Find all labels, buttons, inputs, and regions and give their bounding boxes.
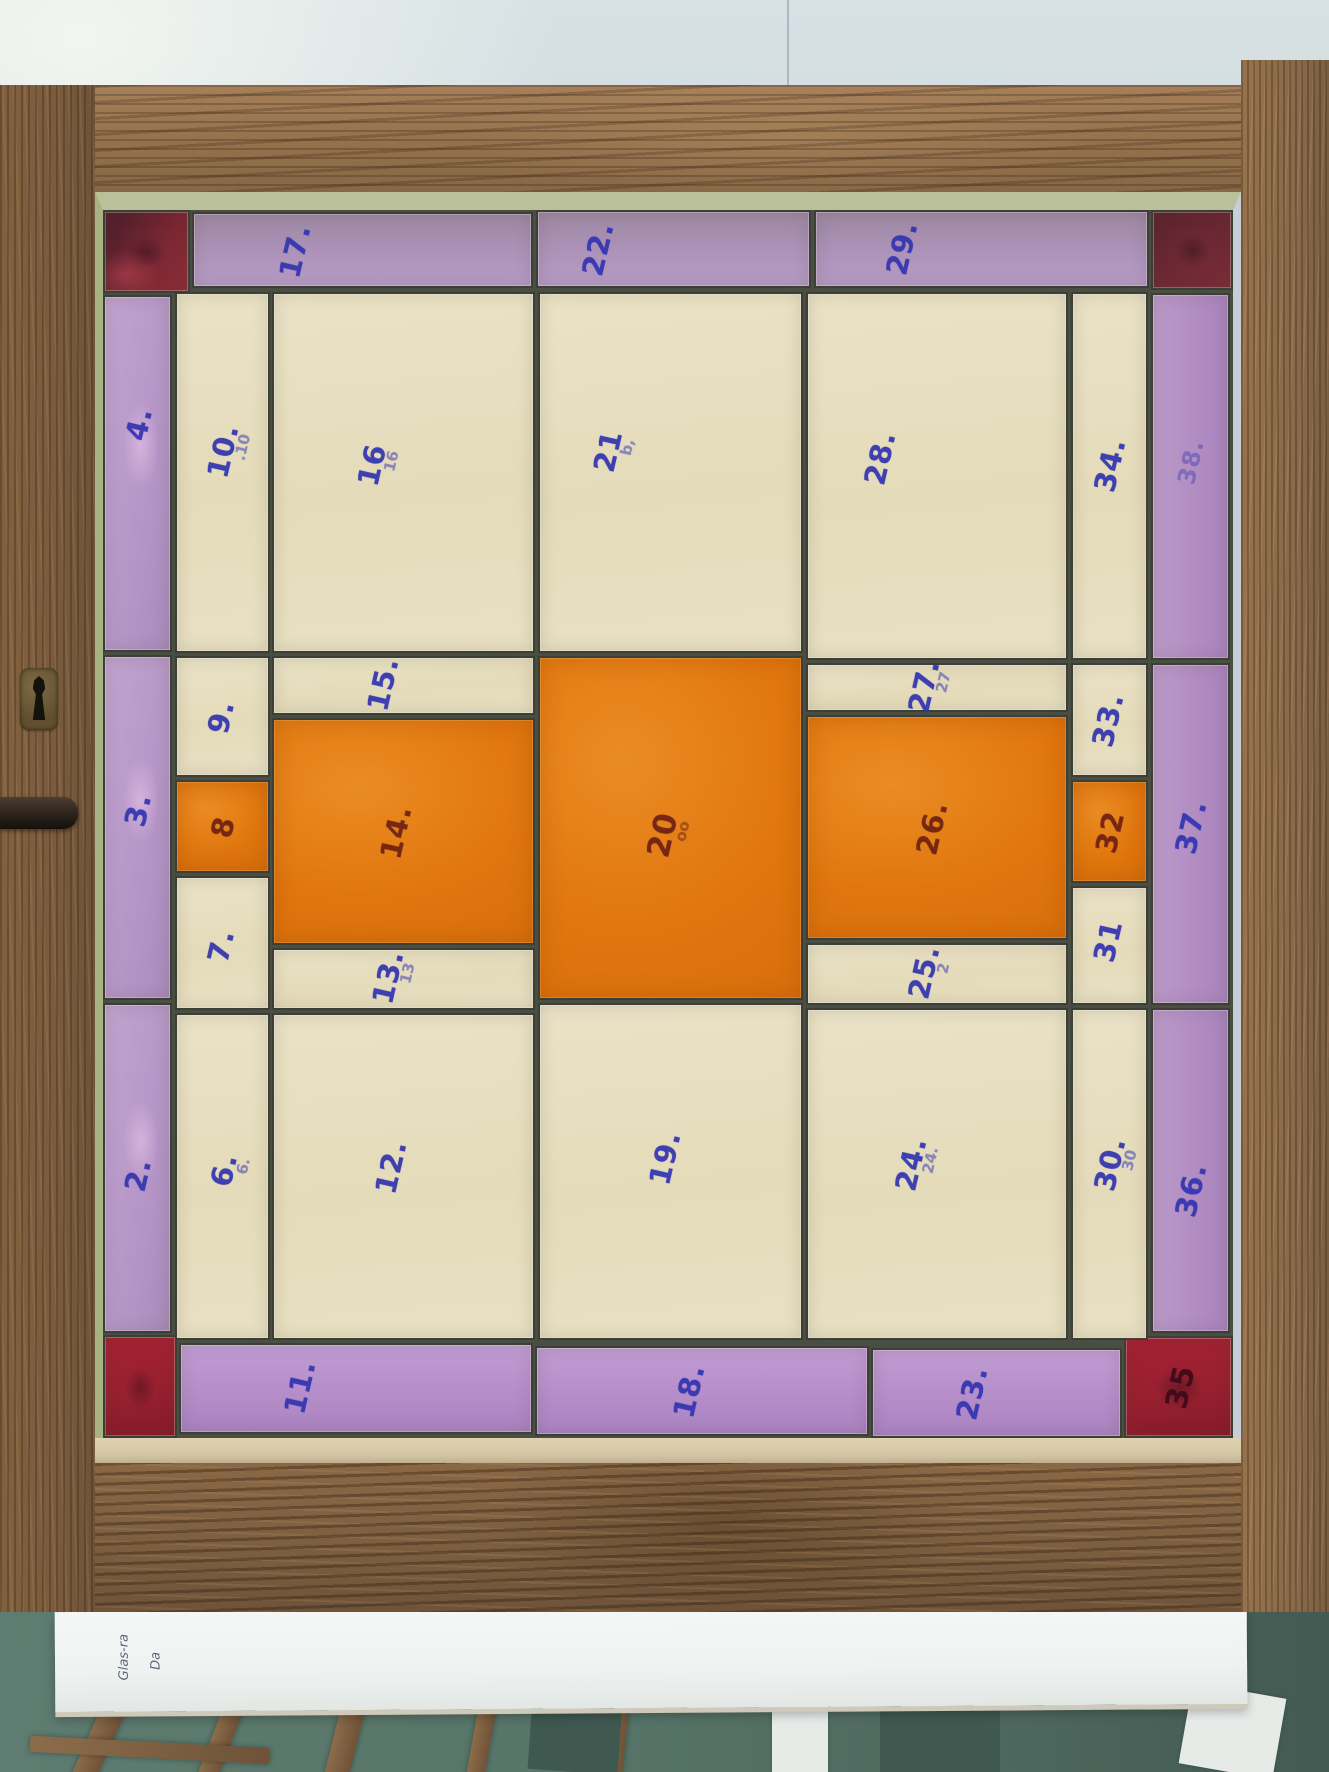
glass-pane-24: 24.24. (806, 1008, 1068, 1340)
glass-pane-9: 9. (175, 656, 270, 777)
glass-pane-36: 36. (1151, 1008, 1230, 1333)
pane-number: 3. (117, 790, 158, 830)
glass-pane-35: 35 (1124, 1336, 1233, 1438)
pane-number: 17. (272, 221, 317, 282)
glass-pane-15: 15. (272, 656, 535, 715)
pane-number: 34. (1087, 435, 1132, 496)
note-text: Glas-ra (117, 1634, 132, 1681)
pane-number: 31 (1087, 916, 1130, 965)
glass-pane-corner-tl (103, 210, 190, 293)
glass-pane-2: 2. (103, 1003, 172, 1333)
glass-pane-38: 38. (1151, 293, 1230, 660)
pane-number: 14. (373, 801, 418, 862)
pane-number: 4. (118, 404, 159, 444)
glass-pane-22: 22. (536, 210, 811, 288)
pane-number: 23. (949, 1363, 994, 1424)
glass-pane-18: 18. (535, 1346, 869, 1436)
pane-number: 12. (368, 1136, 413, 1197)
glass-pane-14: 14. (272, 718, 535, 945)
glass-pane-17: 17. (192, 212, 533, 288)
glass-pane-34: 34. (1071, 292, 1148, 660)
pane-number: 9. (200, 696, 241, 736)
keyhole-icon (20, 668, 58, 730)
glass-pane-corner-tr (1151, 210, 1233, 290)
glass-pane-19: 19. (538, 1003, 803, 1340)
glass-pane-26: 26. (806, 715, 1068, 940)
pane-number: 19. (643, 1128, 688, 1189)
pane-number-ghost: oo (671, 819, 693, 843)
pane-number-ghost: 16 (381, 449, 403, 473)
pane-number-ghost: 30 (1118, 1148, 1140, 1172)
glass-pane-37: 37. (1151, 663, 1230, 1005)
glass-pane-3: 3. (103, 655, 172, 1000)
frame-left-stile (0, 85, 95, 1612)
pane-number: 22. (575, 219, 620, 280)
pane-number: 8 (204, 812, 242, 840)
keyhole-slot (28, 676, 50, 720)
frame-right-stile (1241, 60, 1329, 1612)
pane-number: 33. (1085, 690, 1130, 751)
pane-number: 29. (879, 217, 924, 278)
pane-number: 7. (200, 926, 241, 966)
pane-number: 18. (666, 1361, 711, 1422)
photo-scene: Glas-ra Da 17.22.29.4.3.2.11.18.23.3538.… (0, 0, 1329, 1772)
pane-number: 35 (1159, 1362, 1203, 1413)
glass-pane-32: 32 (1071, 780, 1148, 883)
pane-number: 2. (117, 1155, 158, 1195)
glass-pane-16: 1616 (272, 292, 535, 653)
glass-pane-33: 33. (1071, 663, 1148, 777)
glass-pane-4: 4. (103, 295, 172, 652)
pane-number: 32 (1088, 807, 1131, 856)
glass-pane-11: 11. (179, 1343, 533, 1434)
wall-seam-line (787, 0, 789, 92)
glass-pane-29: 29. (814, 210, 1149, 288)
pane-number: 15. (360, 654, 405, 715)
easel-post (772, 1702, 828, 1772)
glass-pane-20: 20oo (538, 656, 803, 1000)
note-text: Da (148, 1652, 163, 1670)
glass-pane-corner-bl (103, 1335, 177, 1438)
glass-pane-13: 13.13 (272, 948, 535, 1010)
pane-number: 37. (1168, 797, 1213, 858)
pane-number: 36. (1168, 1159, 1213, 1220)
glass-pane-23: 23. (871, 1348, 1122, 1438)
paper-note: Glas-ra Da (55, 1604, 1248, 1712)
glass-pane-27: 27.27 (806, 663, 1068, 712)
glass-pane-31: 31 (1071, 886, 1148, 1005)
glass-grid: 17.22.29.4.3.2.11.18.23.3538.37.36.10..1… (103, 210, 1233, 1438)
frame-top-rail (95, 85, 1241, 192)
glass-pane-25: 25.2 (806, 943, 1068, 1005)
pane-number: 38. (1172, 437, 1210, 488)
glass-pane-8: 8 (175, 780, 270, 873)
pane-number: 28. (858, 427, 903, 488)
glass-pane-12: 12. (272, 1013, 535, 1340)
glass-pane-7: 7. (175, 876, 270, 1010)
frame-bottom-rail (95, 1463, 1241, 1612)
chair-shadow (880, 1700, 1000, 1772)
pane-number-ghost: 27 (932, 670, 954, 694)
pane-number: 26. (909, 797, 954, 858)
pane-number-ghost: 13 (396, 961, 418, 985)
frame-sill-ledge (95, 1438, 1241, 1463)
glass-pane-10: 10..10 (175, 292, 270, 653)
glass-pane-6: 6.6. (175, 1013, 270, 1340)
pane-number-ghost: 24. (919, 1145, 943, 1175)
door-handle-bar (0, 797, 78, 829)
glass-pane-21: 21b, (538, 292, 803, 653)
pane-number: 11. (277, 1356, 322, 1417)
glass-pane-28: 28. (806, 292, 1068, 660)
glass-pane-30: 30.30 (1071, 1008, 1148, 1340)
